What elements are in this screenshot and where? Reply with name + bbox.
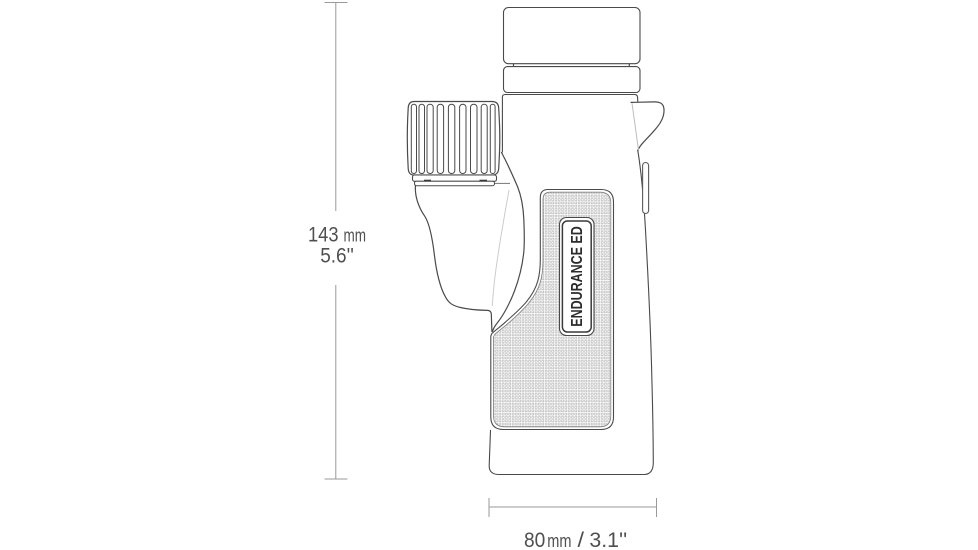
svg-text:80: 80	[524, 528, 545, 550]
svg-text:mm: mm	[547, 531, 571, 550]
svg-text:/: /	[578, 528, 585, 550]
svg-text:3.1'': 3.1''	[589, 528, 627, 550]
svg-text:5.6'': 5.6''	[320, 243, 354, 267]
svg-text:ENDURANCE ED: ENDURANCE ED	[569, 226, 586, 327]
